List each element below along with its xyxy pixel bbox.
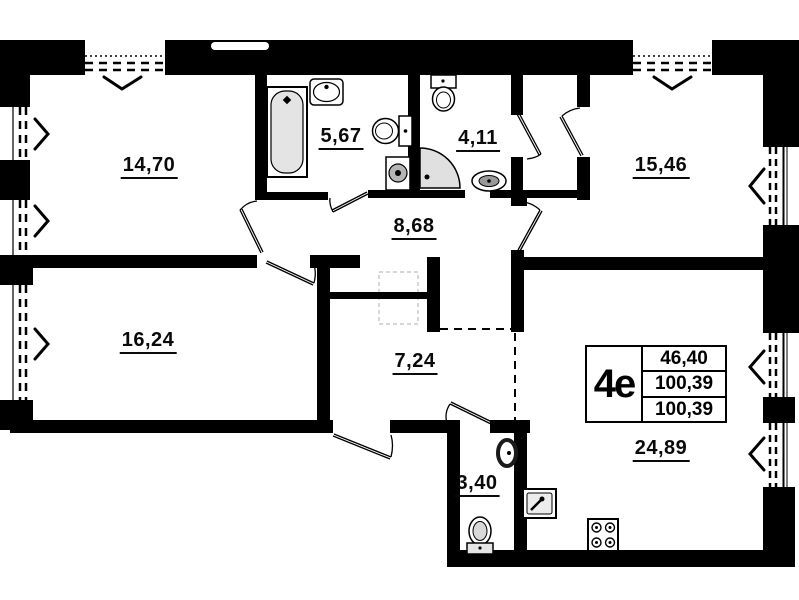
room-label-corridor: 7,24 <box>393 351 438 375</box>
room-label-bathroom: 5,67 <box>319 126 364 150</box>
windows-left-wall <box>13 107 26 400</box>
sink-wc-top <box>472 171 506 191</box>
stove <box>588 519 618 551</box>
shower-tray <box>420 148 460 188</box>
door-bathroom <box>330 192 368 212</box>
apartment-type-label: 4е <box>587 347 643 421</box>
door-bedroom-top-right <box>560 108 583 156</box>
door-hallway-east <box>518 202 542 251</box>
room-label-kitchen-living: 24,89 <box>633 438 690 462</box>
toilet-wc-bottom <box>467 517 493 554</box>
plan-drawing <box>0 0 799 600</box>
room-label-wc-bottom: 3,40 <box>455 473 500 497</box>
floor-plan: 14,70 5,67 4,11 15,46 8,68 16,24 7,24 3,… <box>0 0 799 600</box>
door-bedroom-top-left <box>240 201 263 253</box>
toilet-wc-top <box>431 75 456 111</box>
window-top-left <box>85 56 165 70</box>
toilet-bathroom <box>373 116 413 146</box>
sink-bathroom <box>310 79 343 105</box>
room-label-bedroom-left: 16,24 <box>120 330 177 354</box>
stamp-area-total: 100,39 <box>643 372 725 397</box>
kitchen-sink <box>523 489 556 518</box>
apartment-stamp-values: 46,40 100,39 100,39 <box>643 347 725 421</box>
room-label-bedroom-top-left: 14,70 <box>121 155 178 179</box>
stamp-area-full: 100,39 <box>643 398 725 421</box>
room-label-wc-top: 4,11 <box>456 128 500 152</box>
door-wc-top <box>517 113 541 159</box>
apartment-stamp: 4е 46,40 100,39 100,39 <box>585 345 727 423</box>
door-entrance <box>333 434 393 459</box>
stamp-living-area: 46,40 <box>643 347 725 372</box>
room-label-bedroom-top-right: 15,46 <box>633 155 690 179</box>
window-top-right <box>633 56 712 70</box>
zone-dashed-boundary <box>440 329 515 420</box>
washing-machine <box>386 157 410 190</box>
bathtub <box>267 87 307 177</box>
wall-niche <box>211 42 269 50</box>
door-bedroom-left <box>266 261 315 285</box>
sink-wc-bottom <box>498 440 516 466</box>
room-label-hallway: 8,68 <box>392 216 437 240</box>
